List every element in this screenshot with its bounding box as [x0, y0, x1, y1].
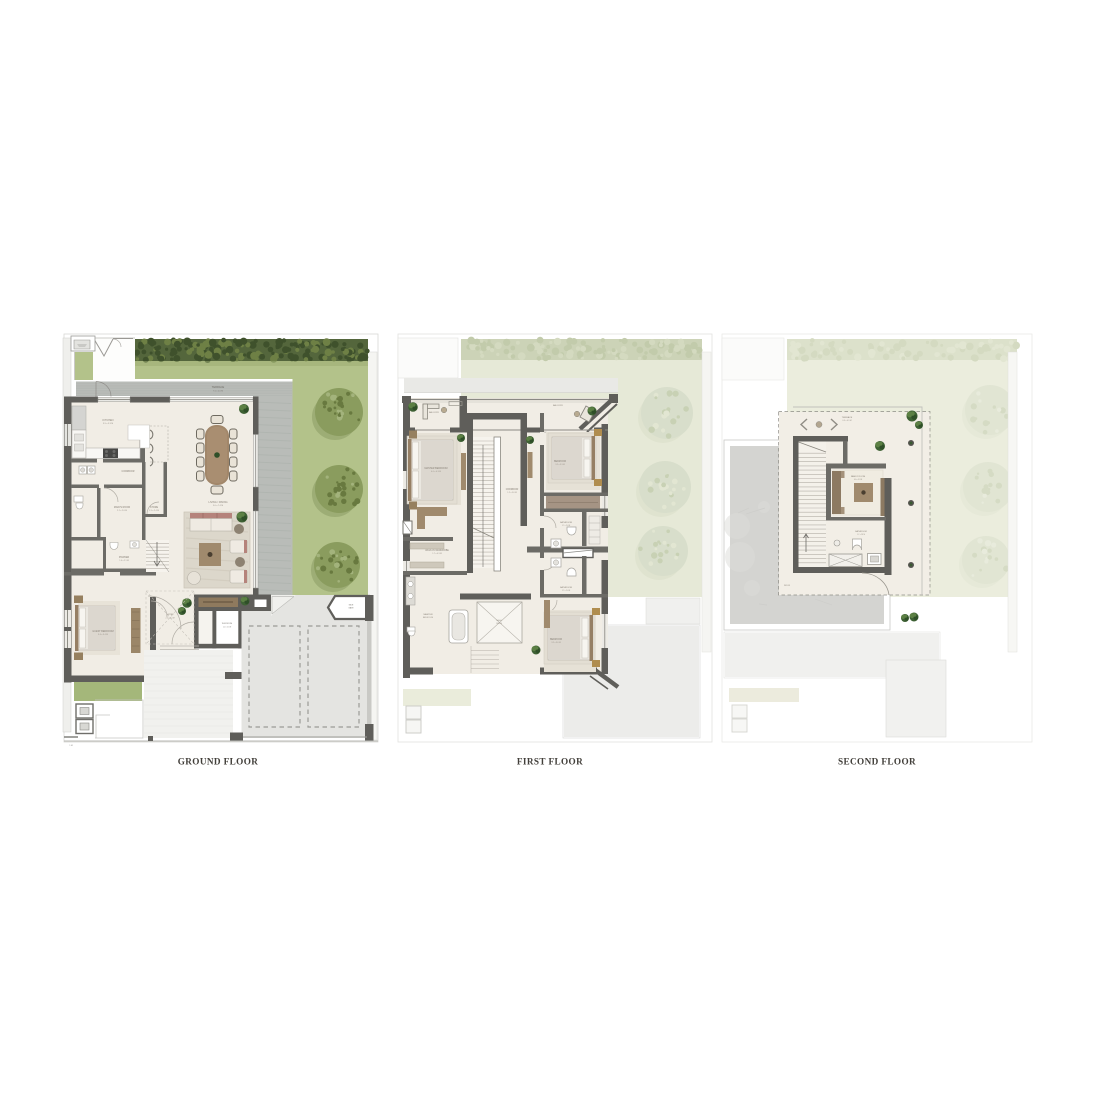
svg-text:5.0 x 7.4 M: 5.0 x 7.4 M [213, 505, 224, 507]
svg-text:1.5 x 2.4 M: 1.5 x 2.4 M [149, 510, 159, 512]
svg-text:HIGH: HIGH [497, 620, 502, 622]
svg-text:BEDROOM: BEDROOM [554, 461, 566, 463]
svg-text:GROUND FLOOR: GROUND FLOOR [178, 757, 259, 767]
svg-text:CORRIDOR: CORRIDOR [506, 489, 519, 491]
svg-text:7.0 x 2.0 M: 7.0 x 2.0 M [213, 391, 223, 393]
svg-text:4.0 x 4.3 M: 4.0 x 4.3 M [431, 471, 441, 473]
svg-text:MASTER BEDROOM: MASTER BEDROOM [425, 467, 448, 470]
svg-text:GUEST BEDROOM: GUEST BEDROOM [92, 630, 113, 633]
svg-text:KITCHEN: KITCHEN [103, 419, 114, 422]
svg-text:3.6 x 3.4 M: 3.6 x 3.4 M [98, 634, 108, 636]
svg-text:ENTRY: ENTRY [166, 614, 174, 616]
svg-text:SECOND FLOOR: SECOND FLOOR [838, 757, 916, 767]
svg-text:CORRIDOR: CORRIDOR [121, 470, 134, 473]
svg-text:2.2 x 2.6 M: 2.2 x 2.6 M [117, 510, 127, 512]
svg-text:MAID'S ROOM: MAID'S ROOM [114, 506, 130, 509]
svg-text:1.7 x 2.8 M: 1.7 x 2.8 M [857, 534, 866, 536]
svg-text:3.9 x 3.3 M: 3.9 x 3.3 M [103, 423, 114, 425]
svg-text:FIRST FLOOR: FIRST FLOOR [517, 757, 583, 767]
svg-text:FAMILY ROOM: FAMILY ROOM [851, 475, 866, 478]
svg-text:BATHROOM: BATHROOM [560, 521, 572, 524]
svg-text:TERRACE: TERRACE [212, 385, 225, 389]
svg-text:1.2 x 5.6 M: 1.2 x 5.6 M [507, 492, 517, 494]
svg-text:BATHROOM: BATHROOM [560, 586, 572, 589]
svg-text:POWDER: POWDER [119, 557, 130, 559]
svg-text:CEILING: CEILING [496, 623, 503, 625]
svg-text:1.7 x 4.3 M: 1.7 x 4.3 M [432, 553, 442, 555]
svg-text:W.M ROOM: W.M ROOM [222, 623, 233, 625]
svg-text:1.7 x 2.4 M: 1.7 x 2.4 M [562, 590, 571, 592]
svg-text:LIVING / DINING: LIVING / DINING [208, 501, 227, 504]
svg-text:6.9 x 4.9 M: 6.9 x 4.9 M [843, 420, 852, 422]
svg-text:TERRACE: TERRACE [842, 416, 853, 419]
svg-text:BATHROOM: BATHROOM [423, 616, 434, 619]
svg-text:MASTER: MASTER [423, 613, 433, 616]
svg-text:1 M: 1 M [69, 745, 73, 747]
svg-text:WALK-IN WARDROBE: WALK-IN WARDROBE [425, 549, 449, 552]
svg-text:BALCONY: BALCONY [553, 404, 564, 407]
svg-text:2.2 x 3.4 M: 2.2 x 3.4 M [166, 618, 175, 620]
svg-text:1.7 x 2.4 M: 1.7 x 2.4 M [562, 525, 571, 527]
svg-text:3.2 x 3.3 M: 3.2 x 3.3 M [555, 464, 565, 466]
svg-text:GATE: GATE [348, 607, 354, 610]
svg-text:BEDROOM: BEDROOM [550, 639, 562, 641]
svg-text:BATHROOM: BATHROOM [855, 530, 867, 533]
svg-text:4.0 x 3.3 M: 4.0 x 3.3 M [854, 479, 863, 481]
svg-text:STORE: STORE [150, 506, 159, 509]
svg-text:3.2 x 3.6 M: 3.2 x 3.6 M [551, 642, 561, 644]
svg-text:ROOF: ROOF [784, 585, 791, 587]
svg-text:1.4 x 2.1 M: 1.4 x 2.1 M [119, 560, 129, 562]
svg-text:SIDE: SIDE [349, 605, 354, 607]
svg-text:1.0 x 2.5 M: 1.0 x 2.5 M [223, 627, 232, 629]
svg-text:BALCONY: BALCONY [429, 411, 440, 414]
